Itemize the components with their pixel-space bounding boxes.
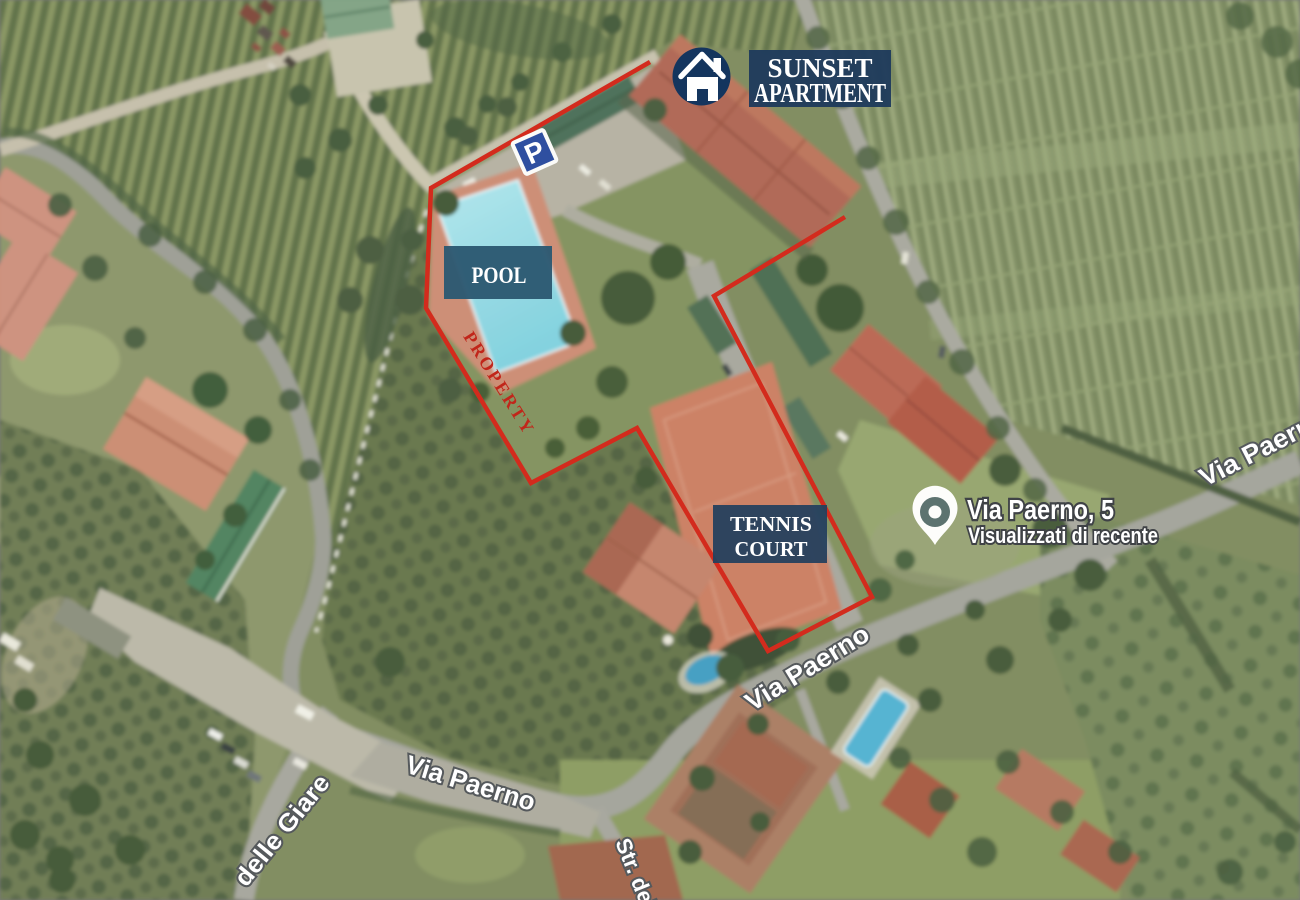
svg-text:Visualizzati di recente: Visualizzati di recente: [968, 523, 1158, 548]
svg-text:TENNIS: TENNIS: [730, 512, 812, 536]
svg-text:POOL: POOL: [472, 263, 527, 288]
svg-text:Via Paerno, 5: Via Paerno, 5: [967, 494, 1114, 525]
svg-text:COURT: COURT: [735, 537, 808, 561]
svg-text:APARTMENT: APARTMENT: [754, 78, 886, 108]
